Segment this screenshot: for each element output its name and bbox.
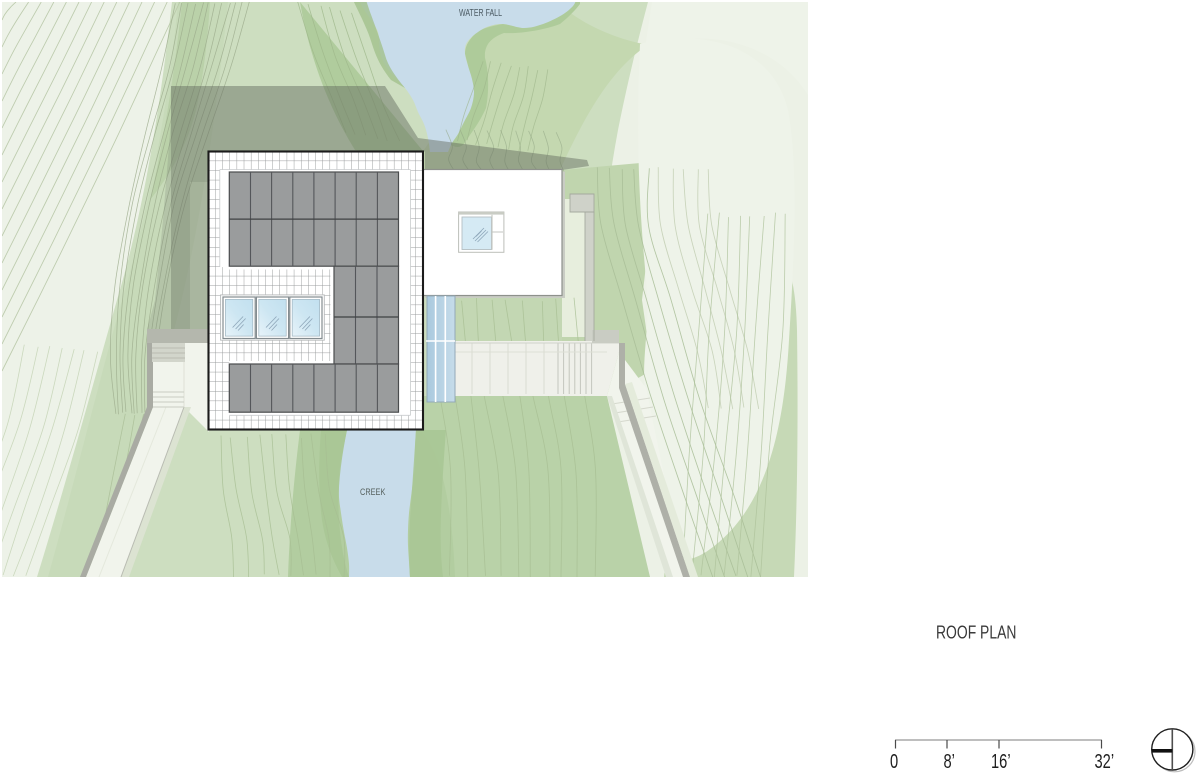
svg-text:0: 0 <box>890 750 898 773</box>
svg-text:16’: 16’ <box>991 750 1011 773</box>
svg-text:ROOF PLAN: ROOF PLAN <box>936 623 1016 643</box>
svg-text:CREEK: CREEK <box>360 486 386 497</box>
svg-text:8’: 8’ <box>944 750 955 773</box>
svg-text:32’: 32’ <box>1095 750 1115 773</box>
svg-text:WATER FALL: WATER FALL <box>459 7 502 18</box>
